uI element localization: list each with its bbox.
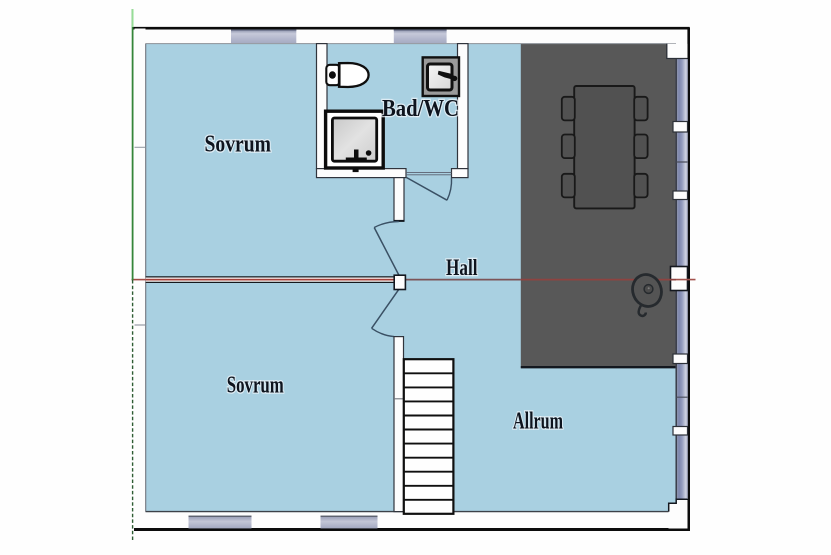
svg-text:Allrum: Allrum (513, 409, 563, 435)
svg-text:Hall: Hall (446, 255, 478, 280)
svg-text:Sovrum: Sovrum (227, 372, 284, 398)
svg-text:Bad/WC: Bad/WC (382, 96, 459, 122)
svg-text:Sovrum: Sovrum (205, 131, 272, 157)
